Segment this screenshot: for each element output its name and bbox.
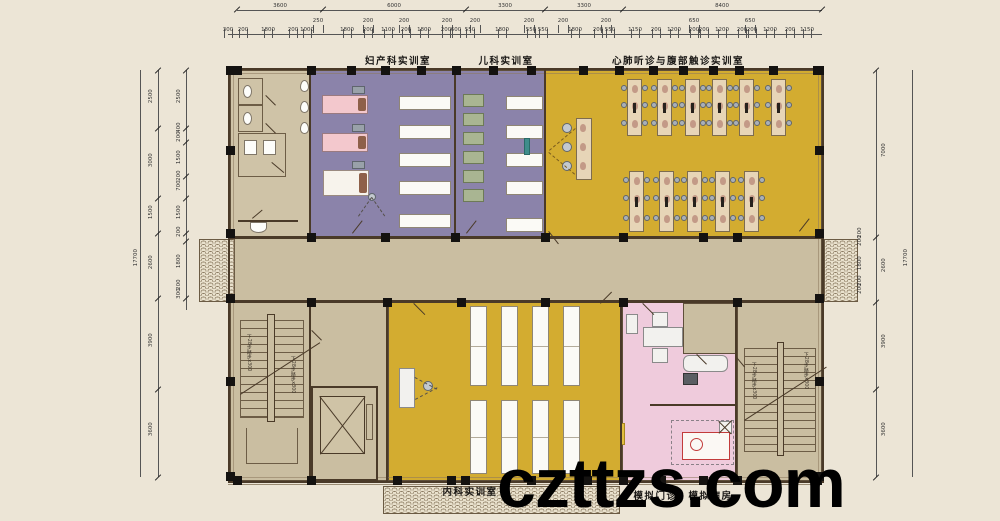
dim-label: 200 bbox=[695, 26, 713, 32]
room-label: 儿科实训室 bbox=[478, 53, 533, 67]
dim-label: 2500 bbox=[147, 89, 153, 103]
column bbox=[307, 66, 316, 75]
column bbox=[226, 294, 235, 303]
column bbox=[452, 66, 461, 75]
dim-label: 200 bbox=[175, 131, 181, 141]
column bbox=[541, 233, 550, 242]
column bbox=[733, 233, 742, 242]
column bbox=[619, 233, 628, 242]
column bbox=[709, 66, 718, 75]
column bbox=[383, 298, 392, 307]
dim-label: 1200 bbox=[761, 26, 779, 32]
dim-label: 650 bbox=[685, 17, 703, 23]
column bbox=[815, 377, 824, 386]
dim-line bbox=[186, 70, 187, 310]
column bbox=[417, 66, 426, 75]
toilet-wall bbox=[238, 220, 298, 222]
column bbox=[457, 298, 466, 307]
dim-label: 1800 bbox=[493, 26, 511, 32]
column bbox=[541, 298, 550, 307]
dim-label: 7000 bbox=[880, 143, 886, 157]
column bbox=[226, 66, 235, 75]
dim-line bbox=[912, 70, 913, 477]
column bbox=[451, 233, 460, 242]
dim-label: 1500 bbox=[175, 150, 181, 164]
room-label: 心肺听诊与腹部触诊实训室 bbox=[612, 53, 744, 67]
column bbox=[579, 66, 588, 75]
column bbox=[815, 146, 824, 155]
watermark: czttzs.com bbox=[497, 448, 845, 518]
column bbox=[226, 146, 235, 155]
stair-note: 下28步踏步x300 bbox=[803, 352, 810, 389]
dim-label: 200 bbox=[397, 26, 415, 32]
column bbox=[769, 66, 778, 75]
dim-label: 200 bbox=[175, 170, 181, 180]
dim-label: 1800 bbox=[338, 26, 356, 32]
dim-label: 200 bbox=[395, 17, 413, 23]
dim-label: 17700 bbox=[132, 249, 138, 266]
dim-label: 3600 bbox=[880, 422, 886, 436]
column bbox=[815, 229, 824, 238]
dim-label: 700 bbox=[175, 180, 181, 190]
dim-tick bbox=[323, 25, 324, 33]
dim-label: 3600 bbox=[147, 422, 153, 436]
dim-label: 200 bbox=[466, 17, 484, 23]
column bbox=[226, 377, 235, 386]
column bbox=[307, 298, 316, 307]
column bbox=[381, 233, 390, 242]
column bbox=[347, 66, 356, 75]
dim-label: 200 bbox=[234, 26, 252, 32]
dim-line bbox=[140, 70, 141, 477]
column bbox=[615, 66, 624, 75]
dim-label: 1800 bbox=[566, 26, 584, 32]
dim-label: 550 bbox=[534, 26, 552, 32]
dim-line bbox=[158, 70, 159, 477]
dim-label: 3300 bbox=[575, 2, 593, 8]
stair-note: 下28步踏步x300 bbox=[246, 334, 253, 371]
dim-label: 2600 bbox=[147, 255, 153, 269]
stair-note: 下28步踏步x300 bbox=[751, 362, 758, 399]
room-label: 内科实训室 bbox=[442, 484, 497, 498]
column bbox=[226, 229, 235, 238]
dim-label: 550 bbox=[601, 26, 619, 32]
dim-label: 1800 bbox=[259, 26, 277, 32]
column bbox=[307, 233, 316, 242]
column bbox=[815, 294, 824, 303]
dim-label: 3900 bbox=[880, 334, 886, 348]
dim-label: 200 bbox=[856, 283, 862, 293]
dim-label: 1100 bbox=[379, 26, 397, 32]
dim-label: 1500 bbox=[147, 205, 153, 219]
dim-label: 200 bbox=[438, 17, 456, 23]
stair-note: 下28步踏步x300 bbox=[290, 356, 297, 393]
dim-label: 1800 bbox=[415, 26, 433, 32]
column bbox=[619, 298, 628, 307]
dim-label: 650 bbox=[741, 17, 759, 23]
dim-label: 200 bbox=[520, 17, 538, 23]
dim-label: 2500 bbox=[175, 89, 181, 103]
column bbox=[381, 66, 390, 75]
dim-label: 1800 bbox=[856, 256, 862, 270]
dim-tick bbox=[558, 25, 559, 33]
dim-label: 1150 bbox=[798, 26, 816, 32]
dim-label: 200 bbox=[781, 26, 799, 32]
dim-label: 200 bbox=[856, 235, 862, 245]
dim-label: 17700 bbox=[902, 249, 908, 266]
dim-label: 200 bbox=[359, 26, 377, 32]
column bbox=[733, 298, 742, 307]
dim-label: 3900 bbox=[147, 333, 153, 347]
dim-label: 1000 bbox=[298, 26, 316, 32]
dim-tick bbox=[480, 25, 481, 33]
dim-label: 250 bbox=[309, 17, 327, 23]
dim-label: 550 bbox=[461, 26, 479, 32]
column bbox=[649, 66, 658, 75]
dim-label: 3600 bbox=[271, 2, 289, 8]
floor-plan-canvas: 3600600033003300840025020020020020020020… bbox=[0, 0, 1000, 521]
room-label: 妇产科实训室 bbox=[365, 53, 431, 67]
dim-label: 6000 bbox=[385, 2, 403, 8]
dim-line bbox=[876, 70, 877, 477]
dim-label: 1200 bbox=[665, 26, 683, 32]
dim-label: 1500 bbox=[175, 205, 181, 219]
column bbox=[527, 66, 536, 75]
dim-line bbox=[237, 10, 822, 11]
dim-label: 3300 bbox=[496, 2, 514, 8]
column bbox=[307, 476, 316, 485]
dim-label: 1200 bbox=[713, 26, 731, 32]
dim-label: 200 bbox=[359, 17, 377, 23]
dim-label: 3000 bbox=[147, 153, 153, 167]
dim-label: 1800 bbox=[175, 254, 181, 268]
dim-label: 200 bbox=[597, 17, 615, 23]
column bbox=[679, 66, 688, 75]
dim-label: 300 bbox=[175, 288, 181, 298]
dim-label: 200 bbox=[554, 17, 572, 23]
column bbox=[393, 476, 402, 485]
dim-label: 200 bbox=[743, 26, 761, 32]
column bbox=[489, 66, 498, 75]
dim-line bbox=[228, 34, 822, 35]
dim-label: 2600 bbox=[880, 258, 886, 272]
column bbox=[699, 233, 708, 242]
column bbox=[226, 472, 235, 481]
column bbox=[815, 66, 824, 75]
dim-label: 8400 bbox=[713, 2, 731, 8]
column bbox=[735, 66, 744, 75]
dim-label: 1150 bbox=[626, 26, 644, 32]
dim-label: 200 bbox=[175, 226, 181, 236]
dim-label: 200 bbox=[647, 26, 665, 32]
outer-wall bbox=[228, 68, 824, 483]
